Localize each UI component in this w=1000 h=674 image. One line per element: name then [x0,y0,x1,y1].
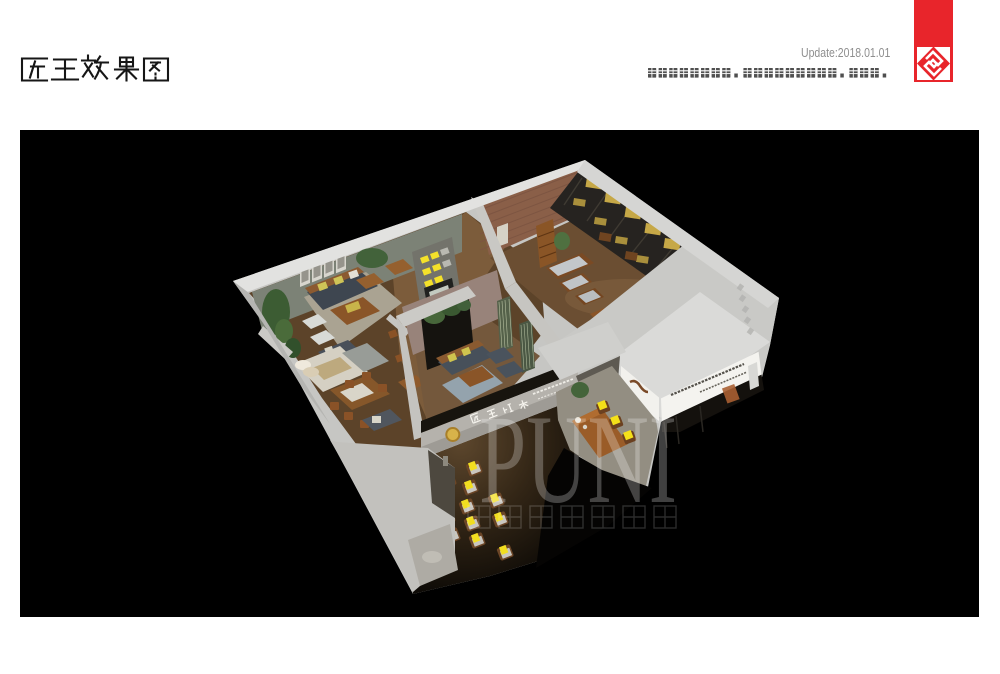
svg-text:PUNI: PUNI [479,390,677,530]
